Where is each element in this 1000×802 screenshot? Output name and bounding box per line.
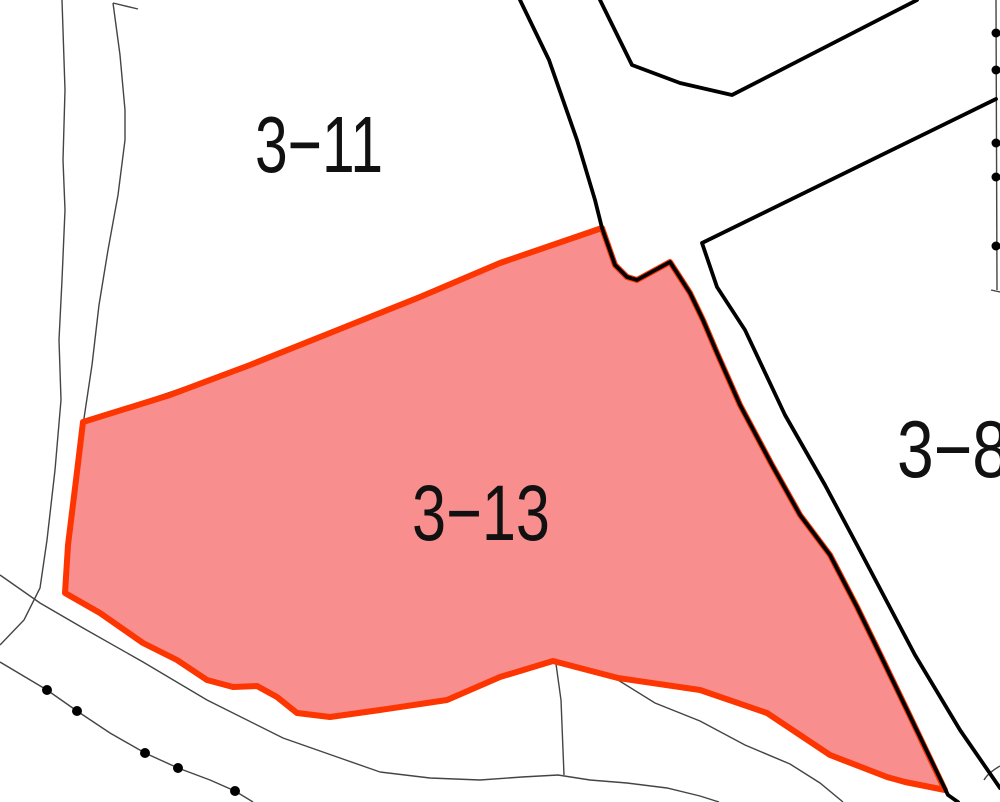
boundary-line-right-vertical-endtick [991,290,1000,292]
boundary-point-dot [992,66,1000,75]
boundary-point-dot [992,173,1000,182]
parcel-label-3-11: 3−11 [255,100,383,189]
parcel-label-3-8: 3−8 [897,405,1000,495]
boundary-point-dot [140,748,150,758]
parcel-label-3-13: 3−13 [412,468,550,557]
boundary-point-dot [230,786,240,796]
boundary-line-left-b-branch [113,3,138,9]
road-corner-top-v [600,0,917,95]
boundary-point-dot [992,29,1000,38]
map-canvas[interactable]: 3−11 3−13 3−8 [0,0,1000,802]
boundary-point-dot [72,706,82,716]
boundary-line-below-parcel-short [556,664,564,775]
boundary-point-dot [42,685,52,695]
boundary-point-dot [173,763,183,773]
road-edge-upper-left [520,0,602,228]
boundary-line-left-a [0,0,65,645]
cadastral-map-svg: 3−11 3−13 3−8 [0,0,1000,802]
boundary-point-dot [992,242,1000,251]
boundary-point-dot [992,139,1000,148]
boundary-line-left-b [83,3,125,425]
